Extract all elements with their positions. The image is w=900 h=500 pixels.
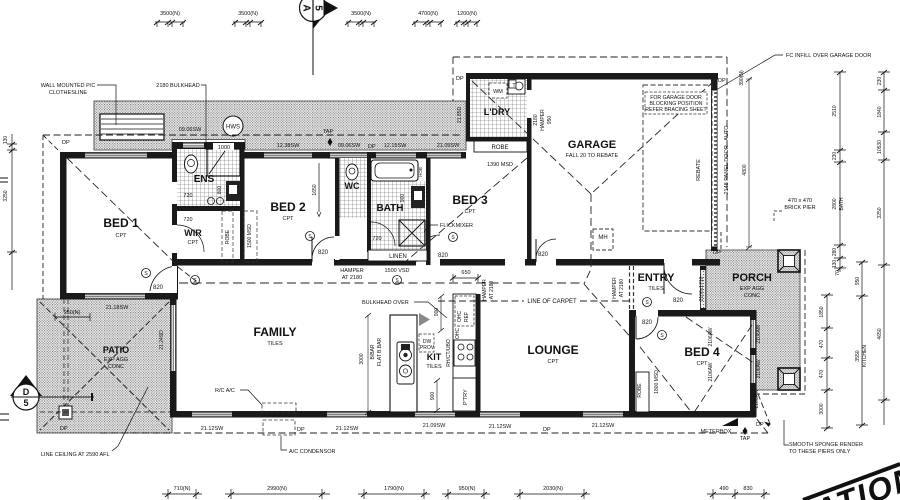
svg-text:LINE OF CARPET: LINE OF CARPET <box>527 299 577 305</box>
svg-text:AT 2180: AT 2180 <box>342 275 362 281</box>
svg-text:FLICKMIXER: FLICKMIXER <box>440 223 473 229</box>
svg-text:DP: DP <box>718 78 726 84</box>
svg-text:METERBOX: METERBOX <box>701 429 732 435</box>
svg-text:BED 3: BED 3 <box>452 193 488 207</box>
svg-text:470: 470 <box>819 370 825 379</box>
svg-text:21.12SW: 21.12SW <box>489 424 512 430</box>
svg-text:1200(N): 1200(N) <box>457 11 477 17</box>
svg-text:09.06SW: 09.06SW <box>338 143 361 149</box>
svg-text:800: 800 <box>217 186 223 195</box>
svg-text:HWS: HWS <box>226 125 240 131</box>
svg-text:820: 820 <box>318 250 329 256</box>
svg-text:230: 230 <box>877 77 883 86</box>
svg-text:130: 130 <box>832 260 838 269</box>
svg-text:HAMPER: HAMPER <box>340 268 364 274</box>
svg-text:B/BAR: B/BAR <box>370 344 376 359</box>
svg-text:BED 1: BED 1 <box>103 216 139 230</box>
svg-text:720: 720 <box>183 217 192 223</box>
svg-text:L'DRY: L'DRY <box>484 107 510 117</box>
svg-text:3000: 3000 <box>359 353 365 364</box>
svg-text:820: 820 <box>642 320 653 326</box>
svg-text:280: 280 <box>832 248 838 257</box>
svg-text:4650: 4650 <box>877 328 883 339</box>
svg-text:1500 VSD: 1500 VSD <box>384 268 409 274</box>
svg-text:BULKHEAD OVER: BULKHEAD OVER <box>362 300 409 306</box>
svg-text:3250: 3250 <box>3 190 9 201</box>
svg-text:1790(N): 1790(N) <box>384 486 404 492</box>
svg-text:WIR: WIR <box>184 228 202 238</box>
svg-text:ENS: ENS <box>194 174 215 185</box>
svg-text:REFER BRACING SHEET: REFER BRACING SHEET <box>645 107 707 113</box>
svg-text:CONC: CONC <box>744 293 760 299</box>
svg-text:1390 MSD: 1390 MSD <box>487 162 513 168</box>
svg-text:R/C A/C: R/C A/C <box>215 388 235 394</box>
svg-text:GARAGE: GARAGE <box>568 139 616 151</box>
svg-text:WC: WC <box>345 181 360 191</box>
svg-text:830: 830 <box>743 486 752 492</box>
svg-text:TAP: TAP <box>323 129 334 135</box>
svg-text:900: 900 <box>434 308 440 317</box>
svg-text:TILES: TILES <box>648 286 664 292</box>
svg-text:WALL MOUNTED P/C: WALL MOUNTED P/C <box>41 83 96 89</box>
svg-text:AT 2180: AT 2180 <box>619 279 625 298</box>
svg-text:REBATE: REBATE <box>696 159 702 181</box>
svg-text:3500(N): 3500(N) <box>160 11 180 17</box>
svg-text:130: 130 <box>3 136 9 145</box>
svg-text:1800 MSD: 1800 MSD <box>654 370 660 394</box>
svg-text:2106AW: 2106AW <box>708 327 714 346</box>
svg-text:820: 820 <box>153 285 164 291</box>
svg-text:FAMILY: FAMILY <box>254 325 297 339</box>
svg-text:BATH: BATH <box>839 197 845 210</box>
svg-text:710(N): 710(N) <box>174 486 191 492</box>
svg-text:950: 950 <box>547 116 553 125</box>
svg-text:720: 720 <box>372 236 381 242</box>
svg-text:LINEN: LINEN <box>389 254 407 260</box>
svg-text:TO THESE PIERS ONLY: TO THESE PIERS ONLY <box>789 449 851 455</box>
svg-text:HAMPER: HAMPER <box>612 277 618 299</box>
svg-text:KITCHEN: KITCHEN <box>862 345 868 367</box>
svg-text:21.85D: 21.85D <box>457 107 463 124</box>
svg-text:FC INFILL OVER GARAGE DOOR: FC INFILL OVER GARAGE DOOR <box>786 53 871 59</box>
svg-text:BED 4: BED 4 <box>684 345 720 359</box>
svg-text:CONC: CONC <box>108 364 124 370</box>
svg-text:10530: 10530 <box>877 140 883 154</box>
svg-text:820: 820 <box>673 298 684 304</box>
svg-text:OHC: OHC <box>455 328 461 340</box>
svg-text:BRICK PIER: BRICK PIER <box>784 205 815 211</box>
svg-text:1840: 1840 <box>877 106 883 117</box>
svg-text:RH/CT/UBO: RH/CT/UBO <box>446 339 452 367</box>
svg-text:A/C CONDENSOR: A/C CONDENSOR <box>289 449 335 455</box>
svg-text:1500 MSD: 1500 MSD <box>247 224 253 248</box>
svg-text:950(N): 950(N) <box>64 310 81 316</box>
svg-text:KIT: KIT <box>427 352 442 362</box>
svg-text:A: A <box>300 4 311 11</box>
svg-text:2180: 2180 <box>533 114 539 125</box>
svg-text:FLAT B.BAR: FLAT B.BAR <box>377 338 383 367</box>
svg-text:P'TRY: P'TRY <box>463 389 469 405</box>
svg-text:DP: DP <box>368 144 376 150</box>
svg-text:DP: DP <box>297 427 305 433</box>
svg-text:3550: 3550 <box>855 350 861 361</box>
svg-text:CPT: CPT <box>697 361 709 367</box>
svg-text:21.18SW: 21.18SW <box>106 305 129 311</box>
svg-text:DP: DP <box>713 250 721 256</box>
svg-text:DP: DP <box>60 426 68 432</box>
svg-text:2106AW: 2106AW <box>754 389 760 408</box>
svg-text:3250: 3250 <box>877 207 883 218</box>
svg-text:3500(N): 3500(N) <box>351 11 371 17</box>
svg-text:ROBE: ROBE <box>491 145 508 151</box>
svg-text:2030(N): 2030(N) <box>543 486 563 492</box>
svg-text:MH: MH <box>598 235 607 241</box>
svg-text:2106AW: 2106AW <box>756 324 762 343</box>
svg-text:21.12SW: 21.12SW <box>592 423 615 429</box>
svg-text:DP: DP <box>62 140 70 146</box>
svg-text:LOUNGE: LOUNGE <box>527 343 578 357</box>
svg-text:720: 720 <box>183 193 192 199</box>
svg-text:HAMPER: HAMPER <box>482 279 488 301</box>
svg-text:21.09SW: 21.09SW <box>423 423 446 429</box>
svg-text:2106x1710: 2106x1710 <box>699 276 705 301</box>
svg-text:LINE CEILING AT 2590 AFL: LINE CEILING AT 2590 AFL <box>41 452 110 458</box>
svg-text:HOB: HOB <box>418 167 423 177</box>
svg-text:ROBE: ROBE <box>225 229 231 244</box>
svg-text:1000: 1000 <box>218 145 230 151</box>
svg-text:230: 230 <box>832 152 838 161</box>
svg-text:2510: 2510 <box>832 105 838 116</box>
svg-text:470: 470 <box>819 340 825 349</box>
svg-text:09.06SW: 09.06SW <box>179 127 202 133</box>
svg-text:900: 900 <box>430 392 436 401</box>
svg-text:2180 BULKHEAD: 2180 BULKHEAD <box>156 83 199 89</box>
svg-text:AT 2180: AT 2180 <box>489 281 495 300</box>
svg-text:21.09SW: 21.09SW <box>437 143 460 149</box>
svg-text:ROBE: ROBE <box>637 383 643 398</box>
svg-text:BATH: BATH <box>376 203 403 214</box>
svg-text:T: T <box>513 83 516 89</box>
svg-text:21.24SD: 21.24SD <box>159 330 165 350</box>
svg-text:470 x 470: 470 x 470 <box>788 198 812 204</box>
svg-text:D: D <box>23 387 30 397</box>
svg-text:2106AW: 2106AW <box>708 362 714 381</box>
svg-text:2106AW: 2106AW <box>756 359 762 378</box>
svg-text:PATIO: PATIO <box>103 345 129 355</box>
svg-text:12.15SW: 12.15SW <box>384 143 407 149</box>
svg-text:5: 5 <box>312 5 323 11</box>
svg-text:2990(N): 2990(N) <box>267 486 287 492</box>
svg-text:BED 2: BED 2 <box>270 200 306 214</box>
svg-text:DP: DP <box>543 427 551 433</box>
svg-text:DP: DP <box>756 422 764 428</box>
svg-text:EXP AGG: EXP AGG <box>104 357 128 363</box>
svg-text:CLOTHESLINE: CLOTHESLINE <box>49 90 88 96</box>
svg-text:1850: 1850 <box>819 306 825 317</box>
svg-text:TILES: TILES <box>426 364 442 370</box>
svg-text:CPT: CPT <box>548 359 560 365</box>
svg-text:4700(N): 4700(N) <box>418 11 438 17</box>
svg-text:12.38SW: 12.38SW <box>277 143 300 149</box>
svg-text:OHC: OHC <box>457 311 463 323</box>
svg-text:EXP AGG: EXP AGG <box>740 286 764 292</box>
svg-text:ENTRY: ENTRY <box>638 272 676 284</box>
svg-text:1650: 1650 <box>312 184 318 195</box>
svg-text:21.12SW: 21.12SW <box>336 426 359 432</box>
svg-text:PORCH: PORCH <box>732 272 772 284</box>
svg-text:820: 820 <box>538 252 549 258</box>
svg-text:REF: REF <box>464 312 470 322</box>
svg-text:HAMPER: HAMPER <box>540 109 546 131</box>
svg-text:TAP: TAP <box>740 436 751 442</box>
svg-text:900: 900 <box>400 194 406 203</box>
svg-text:3000: 3000 <box>819 403 825 414</box>
svg-text:5: 5 <box>23 398 28 408</box>
svg-text:PROV: PROV <box>420 345 435 351</box>
svg-text:FALL 20 TO REBATE: FALL 20 TO REBATE <box>566 153 619 159</box>
svg-text:650: 650 <box>461 270 470 276</box>
svg-text:SMOOTH SPONGE RENDER: SMOOTH SPONGE RENDER <box>789 442 863 448</box>
svg-text:4800: 4800 <box>742 164 748 175</box>
svg-text:CPT: CPT <box>465 209 477 215</box>
svg-text:TILES: TILES <box>267 341 283 347</box>
svg-text:950: 950 <box>855 277 861 286</box>
svg-text:490: 490 <box>719 486 728 492</box>
svg-text:WM: WM <box>493 89 503 95</box>
svg-text:CPT: CPT <box>188 240 200 246</box>
svg-text:3500(N): 3500(N) <box>238 11 258 17</box>
svg-text:820: 820 <box>438 253 449 259</box>
svg-text:CPT: CPT <box>116 233 128 239</box>
svg-text:950(N): 950(N) <box>459 486 476 492</box>
svg-text:DP: DP <box>456 76 464 82</box>
svg-text:390(N): 390(N) <box>739 70 745 86</box>
svg-text:70: 70 <box>835 270 841 276</box>
svg-text:2800: 2800 <box>832 198 838 209</box>
svg-text:2148 PANEL DOOR - AUTO: 2148 PANEL DOOR - AUTO <box>724 125 730 195</box>
svg-text:21.12SW: 21.12SW <box>201 426 224 432</box>
svg-text:CPT: CPT <box>283 216 295 222</box>
